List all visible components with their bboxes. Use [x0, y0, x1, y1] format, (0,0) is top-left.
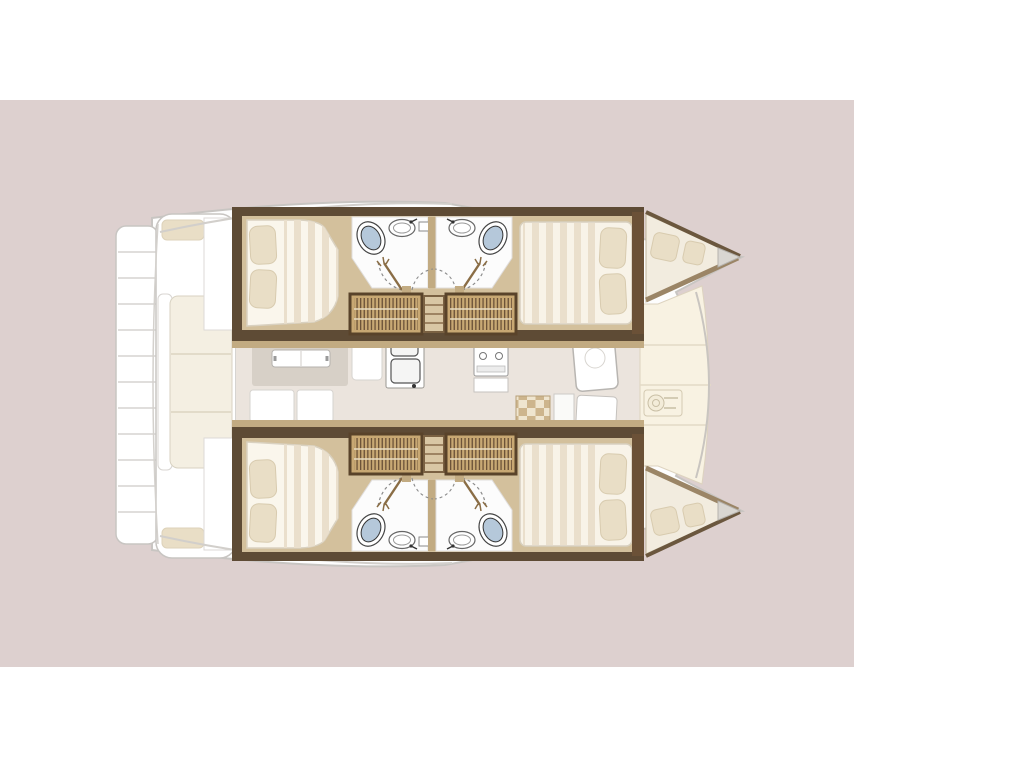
foredeck — [640, 286, 711, 484]
stove-controls — [477, 366, 505, 372]
salon-seat — [297, 390, 333, 422]
sink-basin — [391, 359, 420, 383]
swim-platform-steps — [116, 226, 158, 544]
side-deck-panel — [204, 218, 234, 330]
galley-counter — [474, 378, 508, 392]
floor-plan-canvas — [0, 0, 1024, 768]
page: Top-down floor plan of a 4-cabin sailing… — [0, 0, 1024, 768]
faucet — [412, 384, 416, 388]
side-deck-panel — [204, 438, 234, 550]
salon-seat — [250, 390, 294, 422]
aft-cockpit — [156, 214, 236, 558]
